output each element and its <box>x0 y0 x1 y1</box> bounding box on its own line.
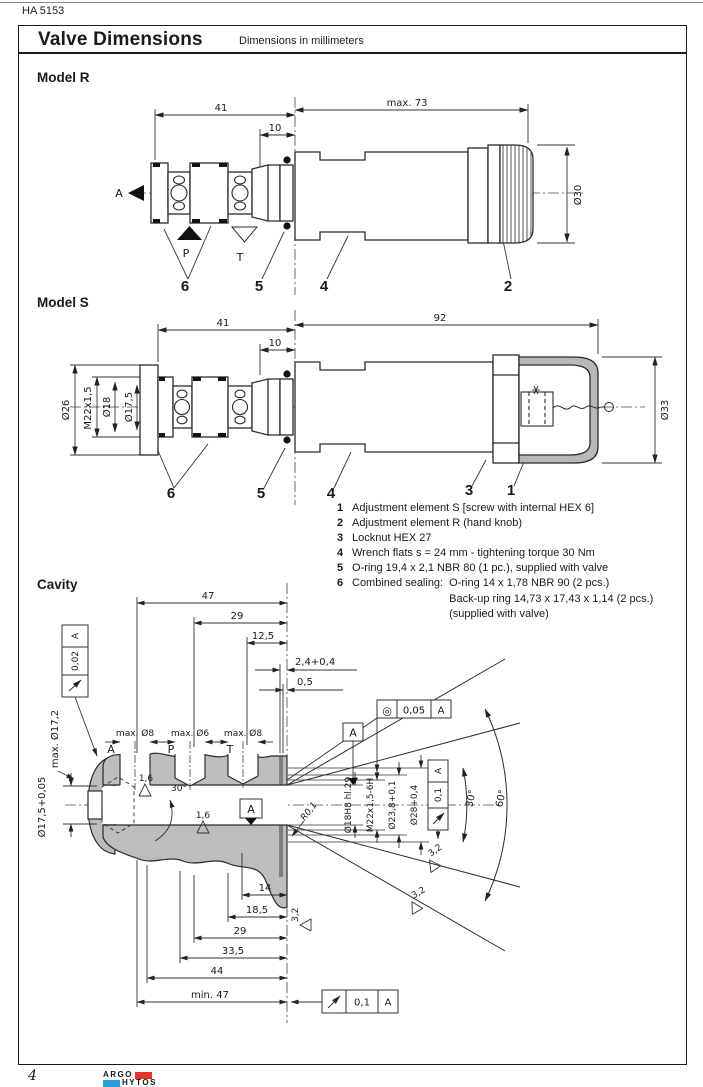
callout-2: 2 <box>504 278 512 295</box>
knurled-knob <box>500 145 533 243</box>
port-a-label: A <box>115 187 123 200</box>
port-p-label: P <box>168 743 175 756</box>
dim-10: 10 <box>269 338 282 349</box>
svg-text:A: A <box>434 767 444 774</box>
port-t-triangle-icon <box>232 227 257 242</box>
dim-d28: Ø28+0,4 <box>409 785 420 826</box>
frame-value: 0,02 <box>71 651 81 671</box>
title-bar: Valve Dimensions Dimensions in millimete… <box>18 25 687 54</box>
callout-6: 6 <box>167 485 175 502</box>
protective-cap <box>519 357 598 463</box>
svg-text:1,6: 1,6 <box>196 811 211 821</box>
svg-text:A: A <box>385 998 392 1009</box>
o-ring-dot <box>283 156 290 163</box>
logo-text-hytos: HYTOS <box>122 1079 157 1087</box>
o-ring-dot <box>283 370 290 377</box>
dim-12-5: 12,5 <box>252 631 274 642</box>
valve-body <box>295 355 614 463</box>
runout-frame-bottom: 0,1 A <box>291 990 398 1013</box>
model-s-drawing: 41 10 92 Ø26 M22x1,5 Ø18 Ø17,5 Ø33 <box>25 300 685 510</box>
o-ring-dot <box>283 436 290 443</box>
legend-item: 4Wrench flats s = 24 mm - tightening tor… <box>337 547 689 560</box>
svg-text:0,1: 0,1 <box>354 998 370 1009</box>
leader-max-d17-2 <box>58 771 74 779</box>
valve-body <box>295 145 533 243</box>
dim-m22: M22x1,5 <box>83 386 94 429</box>
callout-4: 4 <box>320 278 329 295</box>
dim-10: 10 <box>269 123 282 134</box>
dim-44: 44 <box>211 966 224 977</box>
svg-text:3,2: 3,2 <box>427 843 444 859</box>
svg-text:1,6: 1,6 <box>139 774 154 784</box>
legend-item: 5O-ring 19,4 x 2,1 NBR 80 (1 pc.), suppl… <box>337 562 689 575</box>
svg-text:0,05: 0,05 <box>403 706 425 717</box>
dim-d175: Ø17,5 <box>123 392 135 422</box>
dim-d18: Ø18 <box>101 397 113 418</box>
logo-blue-block <box>103 1080 120 1087</box>
callout-6: 6 <box>181 278 189 295</box>
svg-text:A: A <box>438 706 445 717</box>
port-a-label: A <box>107 743 115 756</box>
angle-30: 30° <box>464 789 478 809</box>
dim-d23-8: Ø23,8+0,1 <box>387 781 398 830</box>
svg-text:A: A <box>247 803 255 816</box>
callout-4: 4 <box>327 485 336 502</box>
dim-min-47: min. 47 <box>191 990 229 1001</box>
radius-r0-1: R0,1 <box>299 801 320 823</box>
concentricity-icon: ◎ <box>382 705 392 718</box>
svg-text:A: A <box>349 727 357 740</box>
flow-arrow-a-icon <box>128 185 144 201</box>
legend-item: 2Adjustment element R (hand knob) <box>337 517 689 530</box>
page-number: 4 <box>28 1068 37 1084</box>
page-subtitle: Dimensions in millimeters <box>239 35 364 47</box>
svg-text:0,1: 0,1 <box>434 788 444 802</box>
callout-1: 1 <box>507 482 515 499</box>
svg-text:3,2: 3,2 <box>291 908 301 922</box>
end-socket-hole <box>88 791 102 819</box>
dim-d18h8: Ø18H8 hl.29 <box>343 777 354 834</box>
datum-a-top: A <box>343 723 363 785</box>
dim-41: 41 <box>215 103 228 114</box>
dim-max-d8-a: max. Ø8 <box>116 728 154 739</box>
port-p-triangle-icon <box>177 226 202 240</box>
cavity-drawing: 30° 60° 47 29 12,5 2,4+0,4 0,5 A <box>25 575 685 1030</box>
dim-92: 92 <box>434 313 447 324</box>
model-r-heading: Model R <box>37 70 90 85</box>
valve-cartridge <box>151 163 293 223</box>
dim-d26: Ø26 <box>60 400 72 421</box>
cavity-bottom-wall <box>103 825 287 908</box>
hex-locknut <box>493 355 519 463</box>
page-title: Valve Dimensions <box>38 29 203 51</box>
dim-29-bottom: 29 <box>234 926 247 937</box>
datasheet-page: HA 5153 Valve Dimensions Dimensions in m… <box>0 0 703 1087</box>
argo-hytos-logo: ARGO HYTOS <box>103 1071 157 1087</box>
dim-max-d17-2: max. Ø17,2 <box>49 710 61 768</box>
dim-d30: Ø30 <box>572 185 584 206</box>
legend-item: 1Adjustment element S [screw with intern… <box>337 502 689 515</box>
dim-29: 29 <box>231 611 244 622</box>
port-p-label: P <box>183 247 190 260</box>
roughness-3-2-a: 3,2 <box>419 843 450 873</box>
port-t-label: T <box>226 743 234 756</box>
legend-item: 3Locknut HEX 27 <box>337 532 689 545</box>
dim-14: 14 <box>259 883 272 894</box>
callout-5: 5 <box>255 278 263 295</box>
runout-frame-left: A 0,02 <box>62 625 97 756</box>
dim-d17-5: Ø17,5+0,05 <box>36 777 48 838</box>
runout-frame-right: A 0,1 <box>428 760 448 839</box>
dim-18-5: 18,5 <box>246 905 268 916</box>
document-code: HA 5153 <box>22 5 64 17</box>
dim-max-d8-t: max. Ø8 <box>224 728 262 739</box>
o-ring-dot <box>283 222 290 229</box>
roughness-3-2-c: 3,2 <box>291 908 311 931</box>
dim-2-4: 2,4+0,4 <box>295 657 335 668</box>
dim-d33: Ø33 <box>659 400 671 421</box>
dim-33-5: 33,5 <box>222 946 244 957</box>
chamfer-30: 30° <box>171 784 187 794</box>
dim-max-d6-p: max. Ø6 <box>171 728 209 739</box>
svg-text:3,2: 3,2 <box>410 885 427 901</box>
dim-41: 41 <box>217 318 230 329</box>
dim-max-73: max. 73 <box>387 98 428 109</box>
dim-0-5: 0,5 <box>297 677 313 688</box>
dim-47: 47 <box>202 591 215 602</box>
frame-datum: A <box>71 632 81 639</box>
callout-3: 3 <box>465 482 473 499</box>
page-top-rule <box>0 2 703 3</box>
dim-m22-6h: M22x1,5-6H <box>366 778 376 833</box>
model-r-drawing: 41 10 max. 73 Ø30 <box>25 85 685 300</box>
port-t-label: T <box>236 251 244 264</box>
callout-5: 5 <box>257 485 265 502</box>
